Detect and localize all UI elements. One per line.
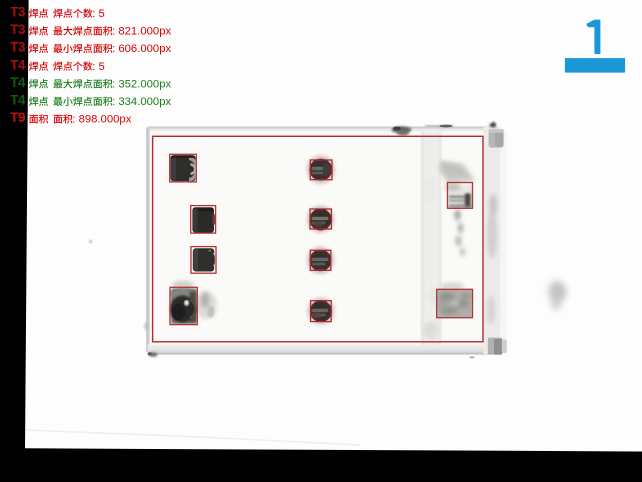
svg-text:T3: T3 xyxy=(10,4,26,19)
svg-text:: 334.000px: : 334.000px xyxy=(112,96,171,108)
svg-text:T4: T4 xyxy=(10,93,26,108)
svg-text:: 5: : 5 xyxy=(92,61,105,73)
svg-text:: 5: : 5 xyxy=(92,8,105,20)
svg-text:: 821.000px: : 821.000px xyxy=(112,26,171,38)
svg-text:: 606.000px: : 606.000px xyxy=(112,43,171,55)
svg-text:T3: T3 xyxy=(10,22,26,37)
svg-text:: 898.000px: : 898.000px xyxy=(72,114,131,126)
svg-text:T3: T3 xyxy=(10,40,26,55)
svg-text:T4: T4 xyxy=(10,57,26,72)
svg-text:T4: T4 xyxy=(10,75,26,90)
svg-text:: 352.000px: : 352.000px xyxy=(112,79,171,91)
svg-text:T9: T9 xyxy=(10,110,25,125)
